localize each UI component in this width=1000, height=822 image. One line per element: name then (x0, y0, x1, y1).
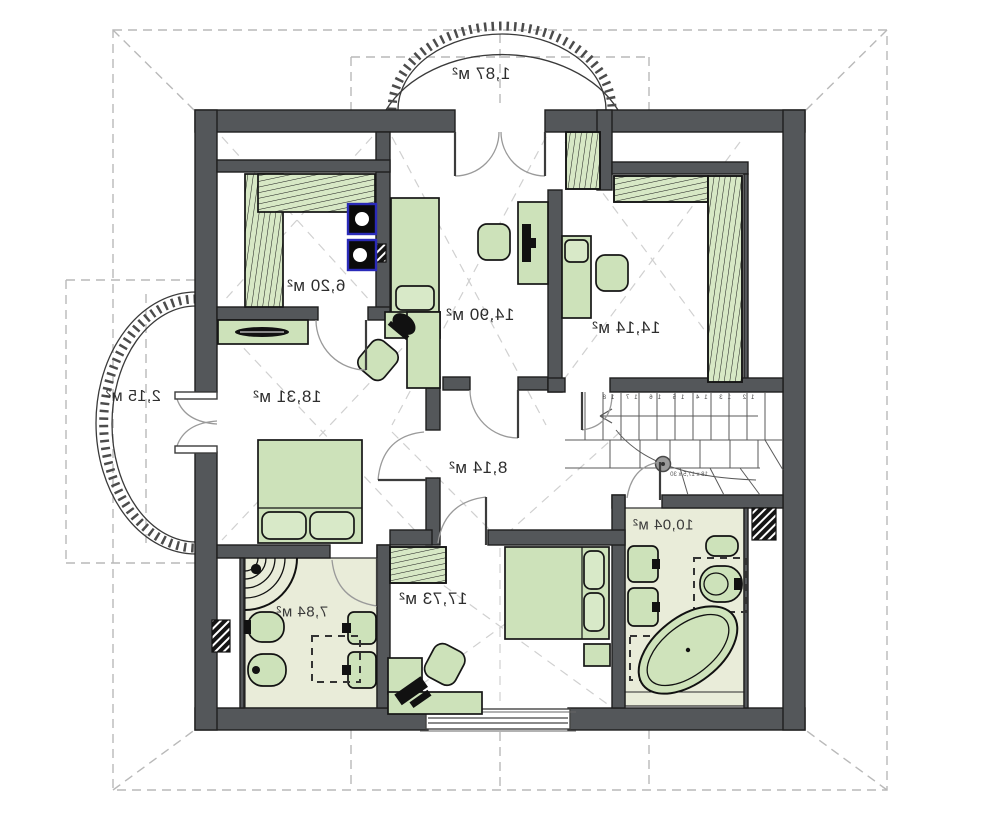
room-label-wardrobe: 6,20 м² (287, 276, 346, 296)
staircase (565, 392, 783, 495)
bedroom-bottom-furniture (388, 547, 610, 714)
room-label-balcony-left: 2,15 м² (105, 388, 160, 406)
floor-plan: 1,87 м² 6,20 м² 14,90 м² 14,14 м² 2,15 м… (0, 0, 1000, 822)
room-label-bedroom-top-right: 14,14 м² (592, 318, 661, 338)
room-label-bedroom-top-left: 14,90 м² (446, 305, 515, 325)
room-label-bathroom-right: 10,04 м² (632, 517, 693, 534)
room-label-bedroom-bottom: 17,73 м² (399, 589, 468, 609)
bedroom-left-furniture (218, 320, 362, 543)
room-label-bathroom-left: 7,84 м² (276, 604, 328, 621)
washer-dryer (348, 204, 376, 270)
room-label-bedroom-left: 18,31 м² (253, 387, 322, 407)
room-label-hallway: 8,14 м² (449, 458, 508, 478)
bedroom-top-right-furniture (562, 176, 742, 382)
floor-plan-drawing (0, 0, 1000, 822)
stair-dimension-note: 18 x 17,5 x 30 (670, 472, 708, 478)
stair-step-numbers: 12 13 14 15 16 17 18 (598, 395, 755, 401)
roof-outline (66, 30, 887, 790)
room-label-balcony-top: 1,87 м² (452, 64, 511, 84)
